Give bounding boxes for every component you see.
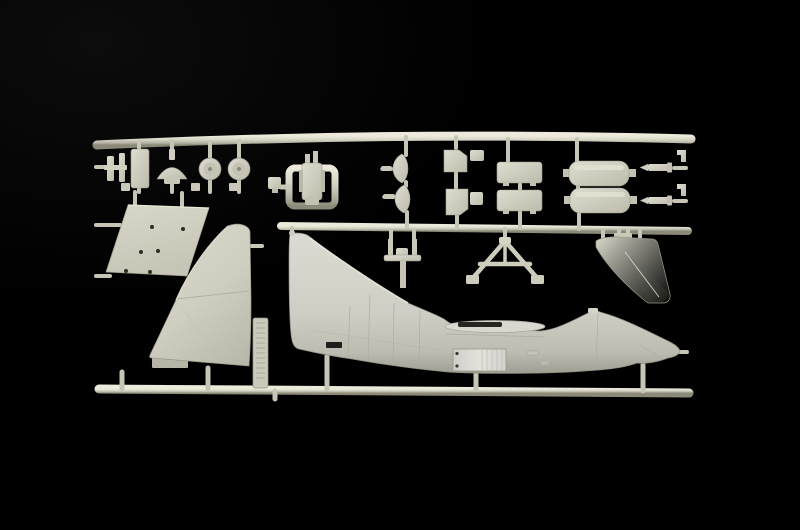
wing-slot <box>458 322 502 327</box>
molded-label-tab <box>253 318 268 388</box>
bottom-rail <box>99 389 689 393</box>
wheel-1 <box>199 158 221 180</box>
tail-slot <box>326 342 342 348</box>
sprue-photo-canvas <box>0 0 800 530</box>
wheel-2 <box>228 158 250 180</box>
photo-of-model-kit-sprue <box>0 0 800 530</box>
gear-bay <box>453 349 506 371</box>
access-door <box>131 149 149 188</box>
gate-ball <box>289 230 295 236</box>
